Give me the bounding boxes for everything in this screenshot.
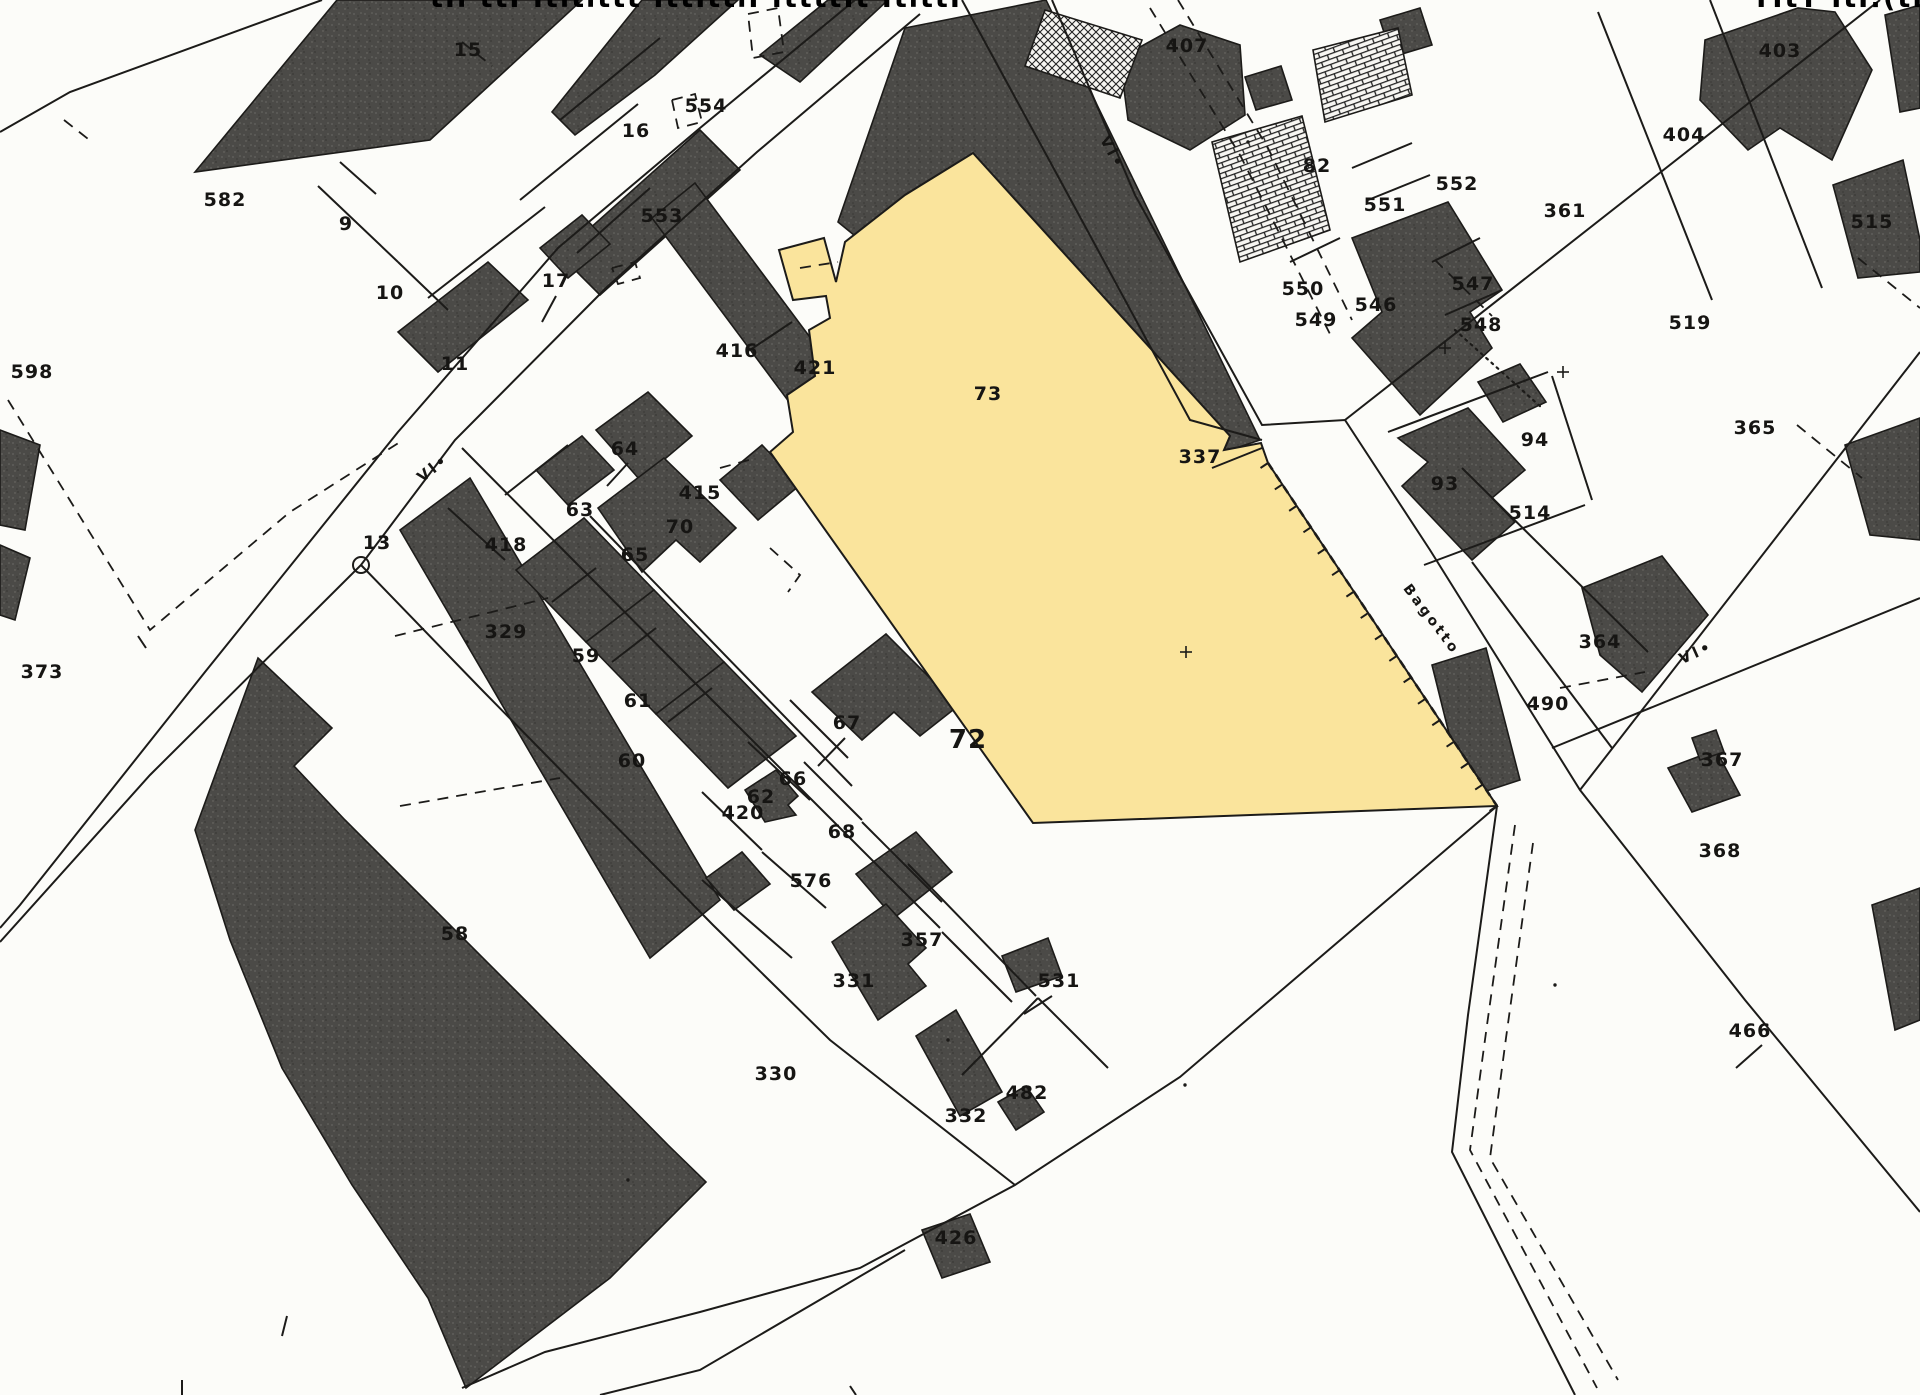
parcel-label-515: 515 bbox=[1851, 211, 1894, 233]
parcel-label-365: 365 bbox=[1734, 417, 1777, 439]
parcel-label-531: 531 bbox=[1038, 970, 1081, 992]
building bbox=[1582, 556, 1708, 692]
parcel-label-15: 15 bbox=[454, 39, 482, 61]
parcel-label-514: 514 bbox=[1509, 502, 1552, 524]
boundary-line bbox=[1038, 998, 1108, 1068]
parcel-label-9: 9 bbox=[339, 213, 353, 235]
parcel-label-67: 67 bbox=[833, 712, 861, 734]
parcel-label-11: 11 bbox=[441, 353, 469, 375]
boundary-line bbox=[398, 262, 448, 310]
boundary-line bbox=[600, 1250, 905, 1395]
parcel-label-65: 65 bbox=[621, 544, 649, 566]
boundary-line bbox=[1736, 1045, 1762, 1068]
building bbox=[1700, 8, 1872, 160]
parcel-label-420: 420 bbox=[722, 802, 765, 824]
boundary-line bbox=[942, 932, 1012, 1002]
parcel-label-10: 10 bbox=[376, 282, 404, 304]
dot-mark bbox=[465, 640, 468, 643]
parcel-label-13: 13 bbox=[363, 532, 391, 554]
parcel-label-466: 466 bbox=[1729, 1020, 1772, 1042]
parcel-label-598: 598 bbox=[11, 361, 54, 383]
brick-hatched-building bbox=[1313, 28, 1412, 122]
parcel-label-70: 70 bbox=[666, 516, 694, 538]
parcel-label-94: 94 bbox=[1521, 429, 1549, 451]
dot-mark bbox=[946, 1038, 949, 1041]
parcel-label-426: 426 bbox=[935, 1227, 978, 1249]
dashed-boundary-line bbox=[64, 120, 92, 142]
parcel-label-63: 63 bbox=[566, 499, 594, 521]
parcel-label-367: 367 bbox=[1701, 749, 1744, 771]
building bbox=[1885, 5, 1920, 112]
map-sheet-header-strip: tIl ttI Itltlttt IttIttlI IttttIt ItlttI… bbox=[0, 0, 1920, 13]
parcel-label-418: 418 bbox=[485, 534, 528, 556]
parcel-label-16: 16 bbox=[622, 120, 650, 142]
parcel-label-482: 482 bbox=[1006, 1082, 1049, 1104]
parcel-label-547: 547 bbox=[1452, 273, 1495, 295]
parcel-label-549: 549 bbox=[1295, 309, 1338, 331]
parcel-label-404: 404 bbox=[1663, 124, 1706, 146]
parcel-label-554: 554 bbox=[685, 95, 728, 117]
boundary-line bbox=[542, 296, 556, 322]
parcel-label-403: 403 bbox=[1759, 40, 1802, 62]
boundary-line bbox=[1452, 806, 1575, 1395]
parcel-label-552: 552 bbox=[1436, 173, 1479, 195]
building bbox=[536, 436, 614, 505]
parcel-label-364: 364 bbox=[1579, 631, 1622, 653]
dot-mark bbox=[626, 1178, 629, 1181]
parcel-label-415: 415 bbox=[679, 482, 722, 504]
parcel-label-582: 582 bbox=[204, 189, 247, 211]
parcel-label-64: 64 bbox=[611, 438, 639, 460]
parcel-label-337: 337 bbox=[1179, 446, 1222, 468]
parcel-label-576: 576 bbox=[790, 870, 833, 892]
parcel-label-546: 546 bbox=[1355, 294, 1398, 316]
parcel-label-373: 373 bbox=[21, 661, 64, 683]
cadastral-map-page: tIl ttI Itltlttt IttIttlI IttttIt ItlttI… bbox=[0, 0, 1920, 1395]
parcel-label-60: 60 bbox=[618, 750, 646, 772]
parcel-label-416: 416 bbox=[716, 340, 759, 362]
building bbox=[1478, 364, 1546, 422]
building bbox=[0, 545, 30, 620]
building bbox=[1872, 888, 1920, 1030]
dashed-boundary-line bbox=[1490, 843, 1618, 1380]
parcel-label-68: 68 bbox=[828, 821, 856, 843]
parcel-label-421: 421 bbox=[794, 357, 837, 379]
parcel-label-17: 17 bbox=[542, 270, 570, 292]
boundary-line bbox=[804, 762, 862, 820]
dot-mark bbox=[1246, 140, 1249, 143]
parcel-label-330: 330 bbox=[755, 1063, 798, 1085]
parcel-label-361: 361 bbox=[1544, 200, 1587, 222]
boundary-line bbox=[318, 186, 398, 262]
parcel-label-551: 551 bbox=[1364, 194, 1407, 216]
parcel-label-73: 73 bbox=[974, 383, 1002, 405]
boundary-line bbox=[1552, 376, 1592, 500]
parcel-label-332: 332 bbox=[945, 1105, 988, 1127]
header-text-fragment-left: tIl ttI Itltlttt IttIttlI IttttIt ItlttI bbox=[430, 0, 962, 13]
boundary-line bbox=[1598, 12, 1712, 300]
parcel-label-407: 407 bbox=[1166, 35, 1209, 57]
boundary-line bbox=[138, 636, 146, 648]
parcel-label-519: 519 bbox=[1669, 312, 1712, 334]
dashed-boundary-line bbox=[8, 400, 400, 630]
dashed-boundary-line bbox=[1470, 825, 1597, 1388]
building bbox=[916, 1010, 1002, 1116]
dot-mark bbox=[1553, 983, 1556, 986]
parcel-label-66: 66 bbox=[779, 768, 807, 790]
parcel-label-550: 550 bbox=[1282, 278, 1325, 300]
parcel-label-59: 59 bbox=[572, 645, 600, 667]
parcel-label-357: 357 bbox=[901, 929, 944, 951]
boundary-line bbox=[1352, 143, 1412, 168]
parcel-label-93: 93 bbox=[1431, 473, 1459, 495]
parcel-label-82: 82 bbox=[1303, 155, 1331, 177]
building bbox=[856, 832, 952, 918]
parcel-label-58: 58 bbox=[441, 923, 469, 945]
boundary-line bbox=[282, 1316, 287, 1336]
dot-mark bbox=[1183, 1083, 1186, 1086]
parcel-label-368: 368 bbox=[1699, 840, 1742, 862]
parcel-label-61: 61 bbox=[624, 690, 652, 712]
boundary-line bbox=[1462, 468, 1648, 652]
parcel-label-490: 490 bbox=[1527, 693, 1570, 715]
parcel-label-548: 548 bbox=[1460, 314, 1503, 336]
cadastral-map-canvas[interactable]: 5825981555416553910171113373416421736463… bbox=[0, 0, 1920, 1395]
parcel-label-331: 331 bbox=[833, 970, 876, 992]
building bbox=[832, 904, 926, 1020]
building bbox=[1245, 66, 1292, 110]
parcel-label-72: 72 bbox=[949, 725, 987, 755]
building bbox=[1398, 408, 1525, 560]
boundary-line bbox=[962, 998, 1038, 1075]
street-label-Bagotto-3: Bagotto bbox=[1400, 581, 1463, 658]
parcel-label-553: 553 bbox=[641, 205, 684, 227]
boundary-line bbox=[850, 1386, 856, 1395]
header-text-fragment-right: TItT ItI:(tIII It bbox=[1752, 0, 1920, 13]
boundary-line bbox=[340, 162, 376, 194]
building bbox=[0, 430, 40, 530]
dashed-boundary-line bbox=[770, 548, 800, 592]
dashed-boundary-line bbox=[400, 778, 560, 806]
street-label-Vl-0: Vl• bbox=[413, 450, 452, 486]
parcel-label-329: 329 bbox=[485, 621, 528, 643]
building bbox=[1845, 418, 1920, 540]
